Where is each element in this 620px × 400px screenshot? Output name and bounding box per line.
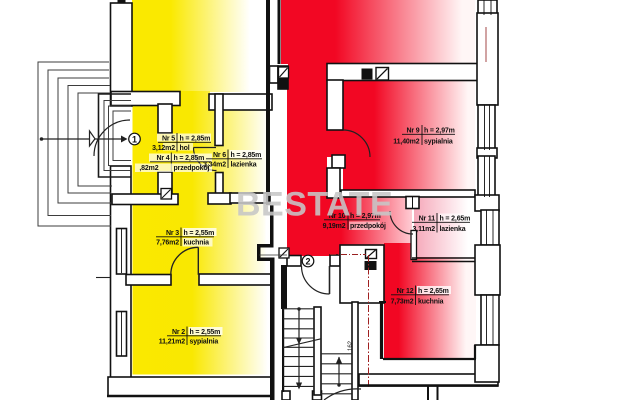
svg-text:kuchnia: kuchnia — [184, 240, 210, 247]
svg-text:Nr 12: Nr 12 — [397, 288, 414, 295]
svg-text:kuchnia: kuchnia — [418, 299, 444, 306]
svg-text:1: 1 — [132, 134, 137, 144]
svg-text:sypialnia: sypialnia — [424, 139, 453, 146]
svg-text:Nr 5: Nr 5 — [162, 136, 175, 143]
svg-text:h = 2,85m: h = 2,85m — [231, 152, 262, 159]
svg-text:9,19m2: 9,19m2 — [323, 223, 346, 230]
svg-text:h = 2,55m: h = 2,55m — [190, 329, 221, 336]
svg-text:h = 2,65m: h = 2,65m — [440, 216, 471, 223]
svg-text:7,73m2: 7,73m2 — [391, 299, 414, 306]
svg-text:Nr 6: Nr 6 — [213, 152, 226, 159]
svg-text:h = 2,65m: h = 2,65m — [418, 288, 449, 295]
svg-text:BESTATE: BESTATE — [236, 186, 393, 224]
svg-text:hol: hol — [180, 145, 190, 152]
svg-text:Nr 3: Nr 3 — [166, 230, 179, 237]
svg-text:11,40m2: 11,40m2 — [393, 139, 419, 146]
svg-text:,82m2: ,82m2 — [139, 165, 158, 172]
svg-text:sypialnia: sypialnia — [190, 339, 219, 346]
svg-text:Nr 4: Nr 4 — [156, 155, 169, 162]
svg-text:h = 2,97m: h = 2,97m — [424, 128, 455, 135]
svg-text:h = 2,85m: h = 2,85m — [180, 136, 211, 143]
svg-text:2: 2 — [305, 256, 310, 266]
svg-text:lazienka: lazienka — [231, 162, 257, 169]
svg-text:h = 2,85m: h = 2,85m — [174, 155, 205, 162]
svg-text:162: 162 — [348, 340, 354, 351]
svg-text:Nr 11: Nr 11 — [419, 216, 436, 223]
svg-text:Nr 9: Nr 9 — [406, 128, 419, 135]
svg-text:3,12m2: 3,12m2 — [152, 145, 175, 152]
svg-text:3,34m2: 3,34m2 — [203, 162, 226, 169]
svg-text:przedpokój: przedpokój — [350, 223, 386, 230]
svg-text:11,21m2: 11,21m2 — [159, 339, 185, 346]
svg-text:lazienka: lazienka — [440, 226, 466, 233]
svg-text:7,76m2: 7,76m2 — [156, 240, 179, 247]
svg-text:h = 2,55m: h = 2,55m — [184, 230, 215, 237]
svg-text:Nr 2: Nr 2 — [172, 329, 185, 336]
svg-text:3,11m2: 3,11m2 — [413, 226, 436, 233]
